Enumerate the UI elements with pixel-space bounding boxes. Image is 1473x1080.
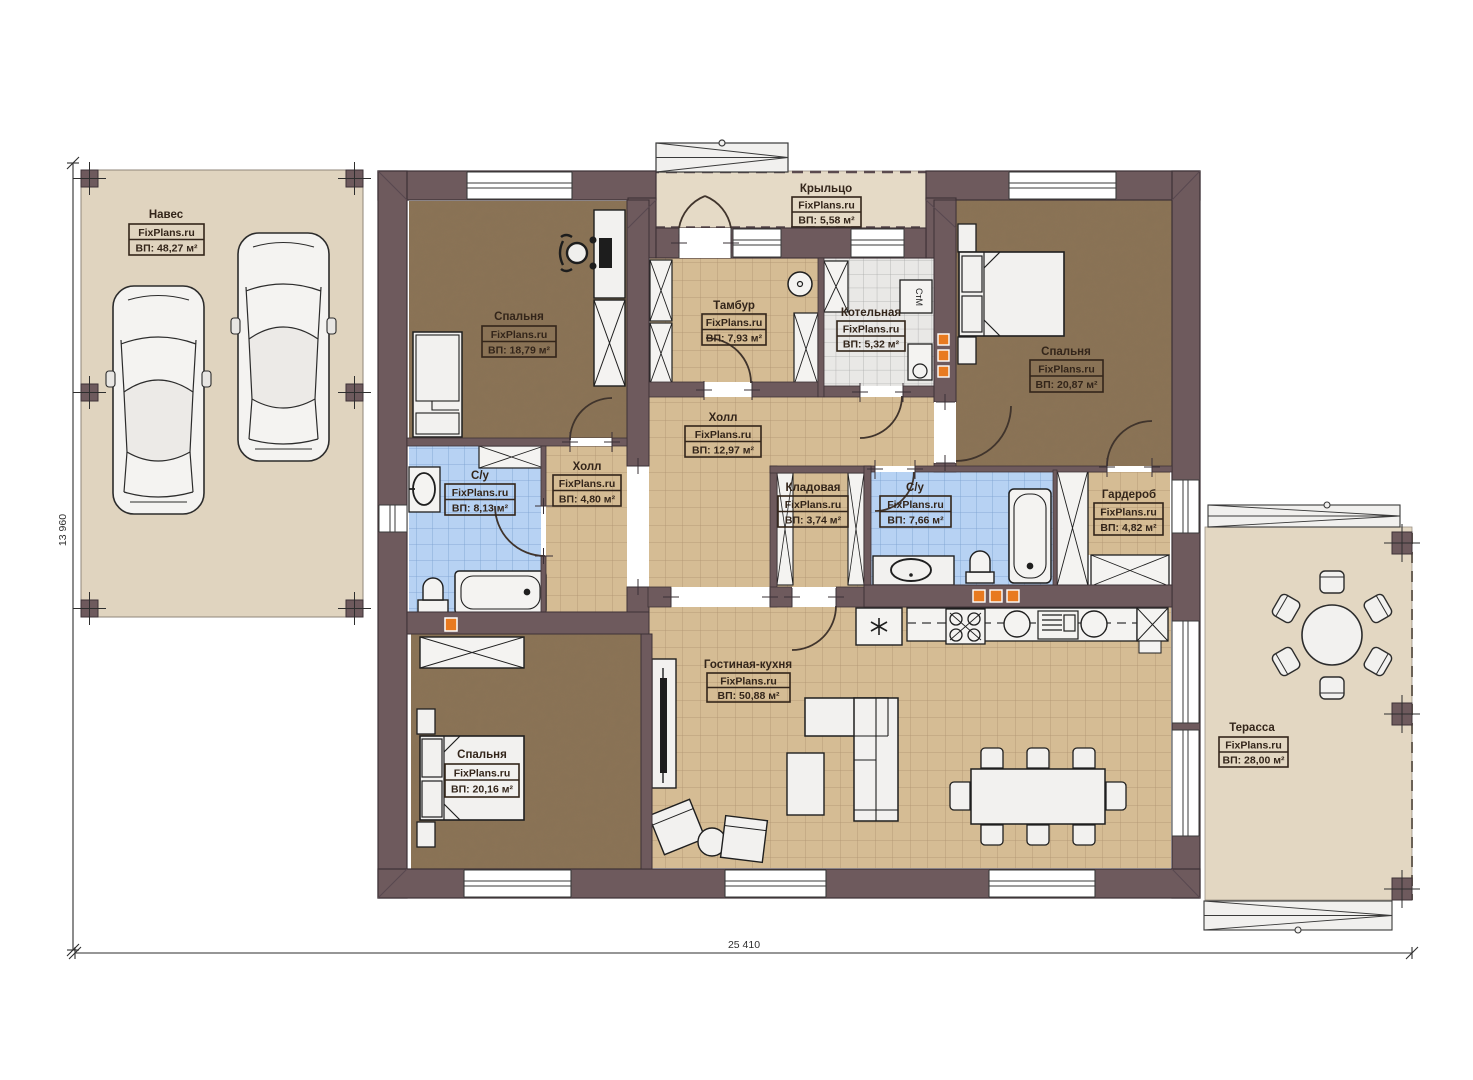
svg-text:ВП: 18,79 м²: ВП: 18,79 м² (488, 345, 551, 357)
svg-text:ВП: 4,80 м²: ВП: 4,80 м² (559, 494, 616, 506)
svg-text:Котельная: Котельная (841, 307, 901, 319)
svg-text:FixPlans.ru: FixPlans.ru (559, 478, 616, 490)
svg-text:ВП: 8,13 м²: ВП: 8,13 м² (452, 503, 509, 515)
svg-text:СтМ: СтМ (914, 288, 924, 306)
svg-text:Холл: Холл (709, 412, 738, 424)
svg-text:ВП: 50,88 м²: ВП: 50,88 м² (717, 690, 780, 702)
svg-text:ВП: 20,16 м²: ВП: 20,16 м² (451, 784, 514, 796)
svg-text:FixPlans.ru: FixPlans.ru (843, 324, 900, 336)
svg-text:ВП: 5,58 м²: ВП: 5,58 м² (798, 215, 855, 227)
svg-text:FixPlans.ru: FixPlans.ru (1225, 740, 1282, 752)
svg-text:FixPlans.ru: FixPlans.ru (1100, 507, 1157, 519)
svg-text:FixPlans.ru: FixPlans.ru (706, 317, 763, 329)
svg-text:С/у: С/у (471, 470, 490, 482)
svg-text:ВП: 20,87 м²: ВП: 20,87 м² (1035, 379, 1098, 391)
svg-text:Спальня: Спальня (494, 311, 544, 323)
svg-text:13 960: 13 960 (57, 514, 69, 546)
svg-text:ВП: 5,32 м²: ВП: 5,32 м² (843, 339, 900, 351)
svg-text:Гостиная-кухня: Гостиная-кухня (704, 659, 792, 671)
svg-text:Крыльцо: Крыльцо (800, 183, 852, 195)
svg-text:Спальня: Спальня (457, 749, 507, 761)
svg-text:FixPlans.ru: FixPlans.ru (785, 499, 842, 511)
svg-text:FixPlans.ru: FixPlans.ru (452, 487, 509, 499)
svg-text:Навес: Навес (149, 209, 184, 221)
svg-text:FixPlans.ru: FixPlans.ru (454, 768, 511, 780)
svg-text:FixPlans.ru: FixPlans.ru (720, 676, 777, 688)
svg-text:ВП: 7,93 м²: ВП: 7,93 м² (706, 333, 763, 345)
svg-text:ВП: 4,82 м²: ВП: 4,82 м² (1100, 522, 1157, 534)
svg-text:Кладовая: Кладовая (785, 482, 840, 494)
svg-text:С/у: С/у (906, 482, 925, 494)
svg-text:FixPlans.ru: FixPlans.ru (1038, 364, 1095, 376)
svg-text:FixPlans.ru: FixPlans.ru (138, 227, 195, 239)
svg-text:FixPlans.ru: FixPlans.ru (798, 200, 855, 212)
svg-text:FixPlans.ru: FixPlans.ru (695, 429, 752, 441)
svg-text:ВП: 3,74 м²: ВП: 3,74 м² (785, 515, 842, 527)
svg-text:FixPlans.ru: FixPlans.ru (491, 329, 548, 341)
svg-text:Спальня: Спальня (1041, 346, 1091, 358)
svg-text:Терасса: Терасса (1229, 722, 1275, 734)
svg-text:ВП: 48,27 м²: ВП: 48,27 м² (135, 243, 198, 255)
svg-text:ВП: 7,66 м²: ВП: 7,66 м² (887, 515, 944, 527)
svg-text:ВП: 12,97 м²: ВП: 12,97 м² (692, 445, 755, 457)
svg-text:FixPlans.ru: FixPlans.ru (887, 499, 944, 511)
svg-text:25 410: 25 410 (728, 939, 760, 951)
svg-text:Холл: Холл (573, 461, 602, 473)
svg-text:ВП: 28,00 м²: ВП: 28,00 м² (1222, 755, 1285, 767)
svg-text:Тамбур: Тамбур (713, 300, 755, 312)
svg-text:Гардероб: Гардероб (1102, 489, 1156, 501)
